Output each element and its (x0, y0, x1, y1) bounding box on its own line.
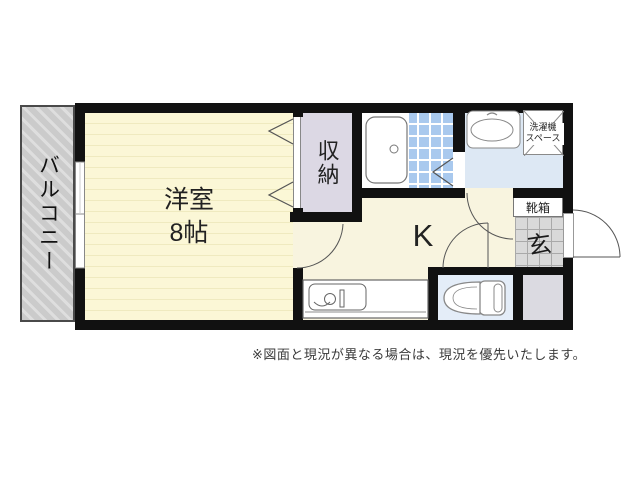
entrance-door-arc (573, 210, 620, 257)
western-room-area: 洋室 8帖 (85, 113, 293, 320)
closet-label: 収納 (311, 139, 343, 187)
western-room-label: 洋室 8帖 (164, 184, 214, 249)
balcony-label: バルコニー (33, 154, 63, 274)
floorplan-canvas: バルコニー 洋室 8帖 収納 玄 靴箱 洗濯機 スペース (0, 0, 640, 480)
storage-gray-area (523, 275, 563, 320)
genkan-label: 玄 (525, 223, 554, 261)
western-room-size: 8帖 (164, 217, 214, 250)
wall-toilet-left (428, 275, 438, 320)
western-room-name: 洋室 (164, 184, 214, 217)
entrance-door-opening (563, 213, 574, 258)
wall-bath-bottom (352, 188, 465, 198)
wall-left-upper (75, 103, 85, 162)
bathroom-tile-grid (407, 113, 453, 188)
wall-closet-top-stub (293, 103, 303, 117)
closet-door-opening (293, 117, 301, 208)
window-sliding (75, 162, 85, 268)
wall-toilet-gray-divider (513, 275, 523, 320)
shoe-box: 靴箱 (513, 197, 563, 217)
wall-room-kitchen-lower (293, 268, 303, 330)
laundry-label-line1: 洗濯機 (529, 122, 556, 133)
toilet-area (438, 275, 513, 320)
shoe-box-label: 靴箱 (526, 199, 550, 216)
disclaimer-text: ※図面と現況が異なる場合は、現況を優先いたします。 (252, 344, 592, 363)
washing-machine-space: 洗濯機 スペース (523, 110, 563, 155)
wall-bottom (75, 320, 573, 330)
balcony-area: バルコニー (20, 105, 75, 322)
bathroom-area (362, 113, 407, 188)
bath-door-opening (453, 152, 465, 188)
wall-left-lower (75, 268, 85, 330)
laundry-label-line2: スペース (526, 133, 561, 144)
kitchen-label: K (398, 215, 448, 257)
wall-closet-right (352, 113, 362, 222)
wall-washroom-bottom (513, 188, 573, 198)
closet-area: 収納 (301, 113, 352, 212)
wall-toilet-top (428, 267, 573, 275)
wall-top (75, 103, 573, 113)
entrance-genkan-area: 玄 (515, 217, 563, 267)
wall-bath-washroom (453, 113, 465, 152)
